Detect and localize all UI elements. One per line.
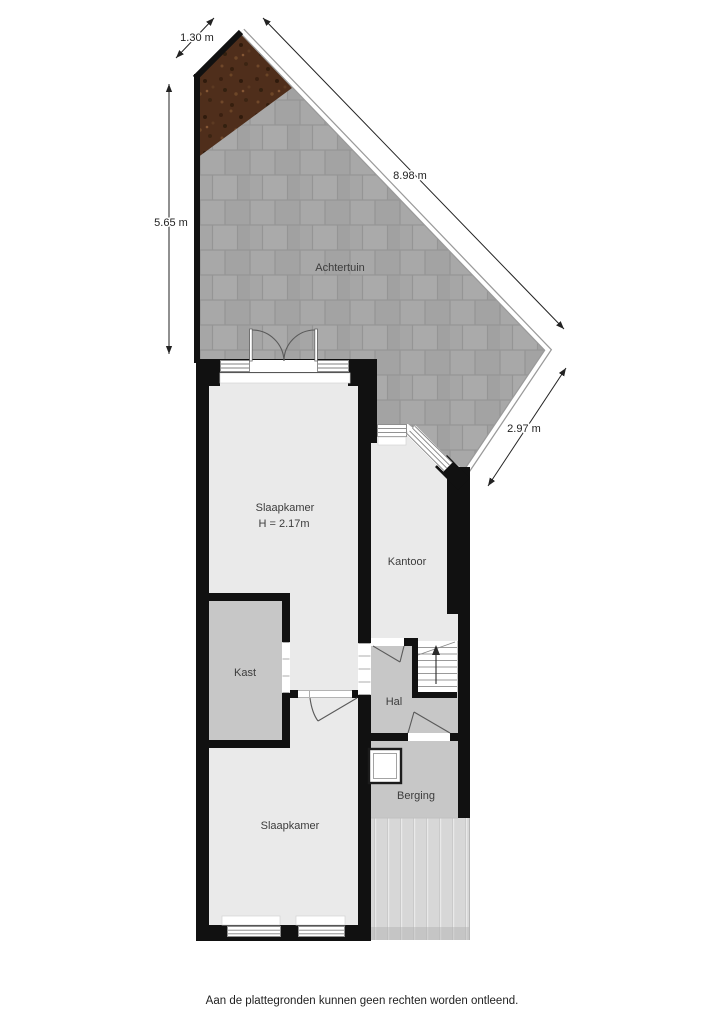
wall-stair-left	[412, 641, 418, 698]
label-kast: Kast	[234, 667, 256, 679]
window-kantoor-top	[377, 424, 407, 437]
dimension-top-slant: 1.30 m	[176, 18, 214, 58]
terrace-decking	[371, 818, 470, 940]
label-slaapkamer-hoogte: H = 2.17m	[258, 518, 309, 530]
garden-door-opening	[250, 360, 317, 372]
dimension-label: 8.98 m	[393, 170, 427, 182]
window-sill-top	[220, 373, 350, 383]
floorplan-canvas: Achtertuin Slaapkamer H = 2.17m Kantoor …	[0, 0, 724, 1024]
dimension-label: 5.65 m	[154, 217, 188, 229]
window-sill-bottom-right	[296, 916, 345, 925]
disclaimer-text: Aan de plattegronden kunnen geen rechten…	[206, 995, 519, 1007]
label-slaapkamer-onder: Slaapkamer	[261, 820, 320, 832]
divider-opening	[358, 643, 371, 695]
window-sill-bottom-left	[222, 916, 280, 925]
wall-stair-bottom	[412, 692, 457, 698]
door-slaapkamer-opening	[298, 690, 352, 698]
wall-kast-bottom	[202, 740, 290, 748]
door-kantoor-opening	[371, 638, 404, 646]
window-bottom-left	[227, 926, 281, 937]
wall-right-lower	[458, 614, 470, 818]
dimension-left: 5.65 m	[154, 84, 188, 354]
label-kantoor: Kantoor	[388, 556, 427, 568]
door-berging-opening	[408, 733, 450, 741]
terrace-edge-band	[371, 927, 470, 940]
window-kantoor-sill	[378, 437, 406, 445]
window-bottom-right	[298, 926, 345, 937]
boiler-icon	[369, 749, 401, 783]
dimension-label: 1.30 m	[180, 32, 214, 44]
label-slaapkamer-boven: Slaapkamer	[256, 502, 315, 514]
dimension-label: 2.97 m	[507, 423, 541, 435]
window-garden-right	[317, 360, 349, 372]
stairs	[418, 641, 457, 692]
window-garden-left	[220, 360, 250, 372]
label-hal: Hal	[386, 696, 403, 708]
wall-divider-upper	[358, 359, 377, 443]
kast-opening	[282, 642, 290, 693]
garden-left-wall	[194, 74, 200, 363]
label-berging: Berging	[397, 790, 435, 802]
wall-left	[196, 359, 209, 941]
label-achtertuin: Achtertuin	[315, 262, 365, 274]
wall-kast-top	[202, 593, 290, 601]
floorplan-page: Achtertuin Slaapkamer H = 2.17m Kantoor …	[0, 0, 724, 1024]
